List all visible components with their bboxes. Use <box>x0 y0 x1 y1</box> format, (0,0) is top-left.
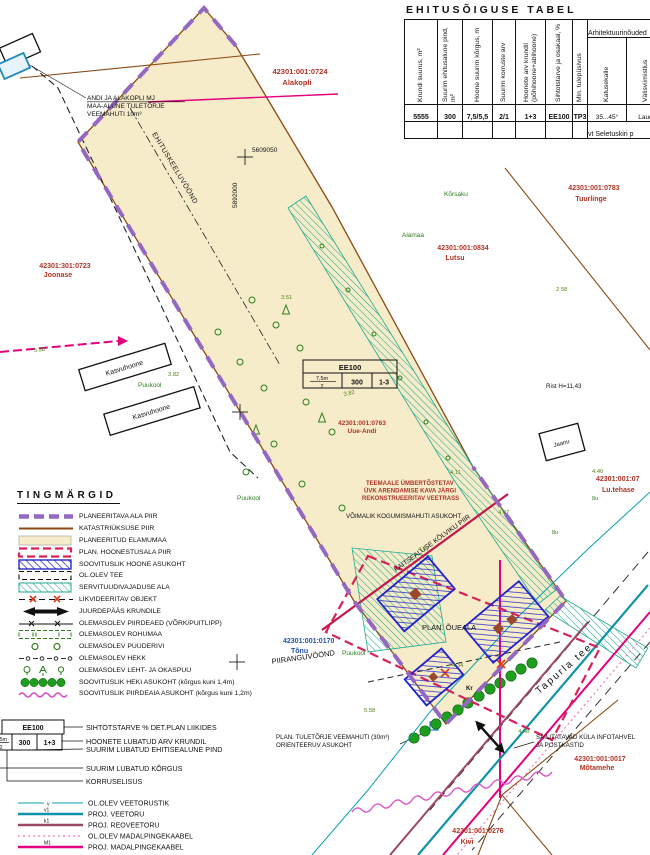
parcel-code-uueandi: 42301:001:0763 <box>338 420 386 427</box>
legend-item-label: KATASTRIÜKSUSE PIIR <box>79 525 154 532</box>
table-value: TP3 <box>573 105 588 122</box>
elevation: 5.58 <box>364 708 375 714</box>
legend-item-label: OL.OLEV TEE <box>79 572 123 579</box>
elevation: 4.40 <box>592 469 603 475</box>
table-value: 300 <box>438 105 463 122</box>
utility-label-1: OL.OLEV VEETORUSTIK <box>88 801 170 808</box>
feature-korsaku: Kõrsaku <box>444 191 468 198</box>
parcel-name-tuurlinge: Tuurlinge <box>575 196 606 203</box>
legend-title: TINGMÄRGID <box>17 490 120 504</box>
parcel-code-tuurlinge: 42301:001:0783 <box>568 185 619 192</box>
legend-item: OLEMASOLEV PUUDERIVI <box>17 641 347 653</box>
legend-swatch-cadastral-line <box>17 523 75 534</box>
infobox-count: 1-3 <box>379 380 389 387</box>
legend-item: SOOVITUSLIK HEKI ASUKOHT (kõrgus kuni 1,… <box>17 676 347 688</box>
table-value: 5555 <box>405 105 438 122</box>
table-value: EE100 <box>546 105 573 122</box>
note-veetrass-2: ÜVK ARENDAMISE KAVA JÄRGI <box>364 488 456 495</box>
utility-label-2: PROJ. VEETORU <box>88 812 144 819</box>
utility-label-3: PROJ. REOVEETORU <box>88 823 159 830</box>
elevation: 4.07 <box>498 510 509 516</box>
legend-swatch-residential-fill <box>17 535 75 546</box>
callout-area: 300 <box>19 740 31 747</box>
legend-item: SERVITUUDIVAJADUSE ALA <box>17 582 347 594</box>
legend-item: PLANEERITUD ELAMUMAA <box>17 535 347 547</box>
parcel-code-lutehase: 42301:001:07 <box>596 476 640 483</box>
legend-swatch-existing-hedge <box>17 653 75 664</box>
parcel-name-lutehase: Lu.tehase <box>602 487 635 494</box>
utility-tag-2: v1 <box>44 808 50 814</box>
table-col-header: Hoone suurim kõrgus, m <box>474 22 482 102</box>
legend-swatch-building-zone <box>17 547 75 558</box>
legend-swatch-building-location <box>17 559 75 570</box>
legend-item-label: JUURDEPÄÄS KRUNDILE <box>79 608 161 615</box>
note-veemahuti-1: ANDI JA ALAKOPLI MJ <box>87 95 155 102</box>
callout-code: EE100 <box>22 725 43 732</box>
legend-item: PLANEERITAVA ALA PIIR <box>17 511 347 523</box>
legend-callout: EE100 7,5m 2 300 1+3 SIHTOTSTARVE % DET.… <box>0 720 222 786</box>
parcel-code-kivi: 42301:001:0276 <box>452 828 503 835</box>
note-infotahvel-2: JA POSTKASTID <box>536 742 584 749</box>
callout-label-5: KORRUSELISUS <box>86 777 143 786</box>
legend-swatch-planned-boundary <box>17 511 75 522</box>
legend-swatch-trees <box>17 665 75 676</box>
table-title: EHITUSÕIGUSE TABEL <box>406 4 650 16</box>
legend-item-label: OLEMASOLEV ROHUMAA <box>79 631 162 638</box>
table-value: 1+3 <box>516 105 546 122</box>
callout-count: 1+3 <box>44 740 56 747</box>
legend-item: OLEMASOLEV PIIRDEAED (VÕRK/PUITLIPP) <box>17 617 347 629</box>
elevation: 2.58 <box>556 287 567 293</box>
legend-item: SOOVITUSLIK PIIRDEAIA ASUKOHT (kõrgus ku… <box>17 688 347 700</box>
note-plan-veemahuti-2: ORIENTEERUV ASUKOHT <box>276 742 352 749</box>
parcel-name-kivi: Kivi <box>461 839 474 846</box>
callout-label-3: SUURIM LUBATUD EHITISEALUNE PIND <box>86 745 222 754</box>
callout-floors: 2 <box>0 745 3 751</box>
legend-swatch-demolition <box>17 594 75 605</box>
parcel-name-uueandi: Uue-Andi <box>348 428 377 435</box>
legend-swatch-access-arrow <box>17 606 75 617</box>
callout-label-1: SIHTOTSTARVE % DET.PLAN LIIKIDES <box>86 723 217 732</box>
table-note: vt Seletuskiri p <box>588 122 650 139</box>
table-col-header: Suurim ehitusalune pind, m² <box>442 22 458 102</box>
legend-item-label: SOOVITUSLIK HOONE ASUKOHT <box>79 561 186 568</box>
utility-tag-3: k1 <box>44 819 50 825</box>
zone-plan-oueala: PLAN. ÕUEALA <box>422 623 476 632</box>
parcel-name-motamehe: Mõtamehe <box>580 765 615 772</box>
table-col-header: Hoonete arv krundil (põhihoone+abihoone) <box>523 22 539 102</box>
note-veemahuti-2: MAA-ALUNE TULETÕRJE <box>87 101 165 110</box>
parcel-code-motamehe: 42301:001:0017 <box>574 756 625 763</box>
table-value: 2/1 <box>493 105 516 122</box>
elevation: 4.34 <box>452 663 464 669</box>
table-col-header: Katusekalle <box>603 42 611 102</box>
legend: TINGMÄRGID PLANEERITAVA ALA PIIR KATASTR… <box>17 490 347 700</box>
feature-puukool1: Puukool <box>138 382 162 389</box>
grid-label-y: 5892000 <box>232 182 239 208</box>
legend-utilities: v v1 k1 M1 OL.OLEV VEETORUSTIK PROJ. VEE… <box>18 801 193 852</box>
infobox-area: 300 <box>351 380 363 387</box>
legend-swatch-proposed-fence <box>17 688 75 699</box>
utility-label-4: OL.OLEV MADALPINGEKAABEL <box>88 834 193 841</box>
infobox-code: EE100 <box>339 363 362 372</box>
legend-item-label: OLEMASOLEV LEHT- JA OKASPUU <box>79 667 191 674</box>
feature-kr: Kr <box>466 686 473 692</box>
elevation: 3.51 <box>281 295 292 301</box>
plan-drawing: EE100 7,5m 2 300 1-3 42301:001:0724 Alak… <box>0 0 650 855</box>
tree-tag: 8u <box>552 530 558 536</box>
parcel-name-alakopli: Alakopli <box>282 78 311 87</box>
legend-swatch-existing-fence <box>17 618 75 629</box>
legend-swatch-grassland <box>17 629 75 640</box>
legend-item-label: SOOVITUSLIK HEKI ASUKOHT (kõrgus kuni 1,… <box>79 679 235 686</box>
legend-item: OLEMASOLEV ROHUMAA <box>17 629 347 641</box>
legend-item: PLAN. HOONESTUSALA PIIR <box>17 546 347 558</box>
feature-rist: Rist H=11,43 <box>546 383 582 390</box>
table-value: Laud <box>627 105 650 122</box>
legend-swatch-tree-row <box>17 641 75 652</box>
legend-item-label: PLAN. HOONESTUSALA PIIR <box>79 549 171 556</box>
legend-item-label: SERVITUUDIVAJADUSE ALA <box>79 584 170 591</box>
legend-item: JUURDEPÄÄS KRUNDILE <box>17 605 347 617</box>
elevation: 5.38 <box>34 347 46 354</box>
note-veetrass-3: REKONSTRUEERITAV VEETRASS <box>362 496 459 502</box>
table-col-header: Suurim korruste arv <box>500 22 508 102</box>
table-col-header: Sihtotstarve ja osakaal, % <box>555 22 563 102</box>
table-value: 35...45° <box>588 105 627 122</box>
legend-item: OL.OLEV TEE <box>17 570 347 582</box>
parcel-name-joonase: Joonase <box>44 272 73 279</box>
callout-label-4: SUURIM LUBATUD KÕRGUS <box>86 764 183 773</box>
table-col-header: Min. tulepüsivus <box>576 22 584 102</box>
utility-label-5: PROJ. MADALPINGEKAABEL <box>88 845 184 852</box>
legend-swatch-existing-road <box>17 570 75 581</box>
feature-alamaa: Alamaa <box>402 232 424 239</box>
table-col-header: Välisviimistlus <box>642 42 650 102</box>
legend-item-label: SOOVITUSLIK PIIRDEAIA ASUKOHT (kõrgus ku… <box>79 690 252 697</box>
elevation: 3.82 <box>168 372 179 378</box>
legend-item: SOOVITUSLIK HOONE ASUKOHT <box>17 558 347 570</box>
callout-height: 7,5m <box>0 737 8 743</box>
table-col-header: Krundi suurus, m² <box>417 22 425 102</box>
table-value: 7,5/5,5 <box>463 105 493 122</box>
note-kogumismahuti: VÕIMALIK KOGUMISMAHUTI ASUKOHT <box>346 513 461 520</box>
grid-label-x: 5609050 <box>252 147 278 154</box>
note-plan-veemahuti-1: PLAN. TULETÕRJE VEEMAHUTI (30m³) <box>276 734 389 741</box>
legend-item-label: LIKVIDEERITAV OBJEKT <box>79 596 157 603</box>
note-veetrass-1: TEEMAALE ÜMBERTÕSTETAV <box>366 480 454 487</box>
tree-tag: 8u <box>592 496 598 502</box>
note-infotahvel-1: SÄILITATAVAD KÜLA INFOTAHVEL <box>536 734 636 741</box>
utility-tag-5: M1 <box>44 841 51 847</box>
legend-item-label: PLANEERITAVA ALA PIIR <box>79 513 158 520</box>
legend-item-label: PLANEERITUD ELAMUMAA <box>79 537 167 544</box>
legend-item: KATASTRIÜKSUSE PIIR <box>17 523 347 535</box>
legend-item-label: OLEMASOLEV PUUDERIVI <box>79 643 164 650</box>
legend-swatch-servitude-area <box>17 582 75 593</box>
building-rights-table: EHITUSÕIGUSE TABEL Krundi suurus, m² Suu… <box>404 2 650 139</box>
legend-item-label: OLEMASOLEV PIIRDEAED (VÕRK/PUITLIPP) <box>79 620 222 627</box>
elevation: 4.48 <box>518 729 529 735</box>
parcel-code-alakopli: 42301:001:0724 <box>272 67 328 76</box>
legend-item-label: OLEMASOLEV HEKK <box>79 655 146 662</box>
table-group-header: Arhitektuurinõuded <box>588 20 650 38</box>
elevation: 4.11 <box>450 470 461 476</box>
infobox-height: 7,5m <box>316 376 329 382</box>
legend-item: LIKVIDEERITAV OBJEKT <box>17 594 347 606</box>
parcel-name-lutsu: Lutsu <box>445 255 464 262</box>
note-veemahuti-3: VEEMAHUTI 10m³ <box>87 111 142 118</box>
elevation: 4.47 <box>418 547 429 553</box>
legend-item: OLEMASOLEV HEKK <box>17 653 347 665</box>
legend-item: OLEMASOLEV LEHT- JA OKASPUU <box>17 664 347 676</box>
legend-swatch-proposed-hedge <box>17 677 75 688</box>
parcel-code-lutsu: 42301:001:0834 <box>437 245 488 252</box>
parcel-code-joonase: 42301:301:0723 <box>39 263 90 270</box>
infobox-floors: 2 <box>320 384 323 390</box>
